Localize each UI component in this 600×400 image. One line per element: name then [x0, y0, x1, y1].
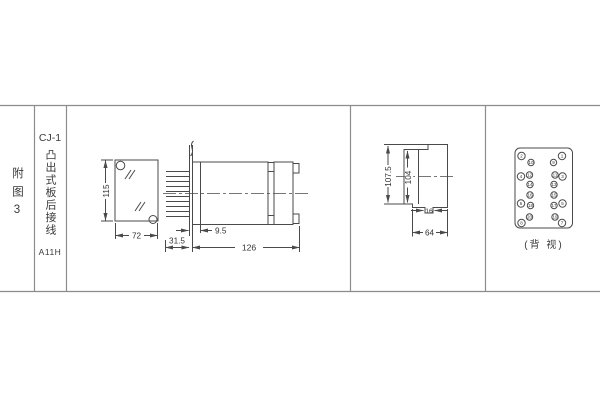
- terminal-number: 19: [552, 215, 558, 220]
- terminal: 13: [551, 181, 557, 187]
- terminal: 1: [558, 152, 565, 159]
- rear-ear: [293, 214, 299, 224]
- terminal-number: 15: [551, 193, 557, 198]
- terminal: 16: [527, 192, 533, 198]
- terminal-number: 20: [527, 215, 533, 220]
- terminal-number: 5: [561, 201, 564, 206]
- terminal: 8: [518, 219, 525, 226]
- dim-72-label: 72: [132, 232, 142, 241]
- terminal-number: 11: [553, 173, 558, 178]
- terminal-number: 18: [528, 203, 534, 208]
- terminal-number: 2: [520, 154, 523, 159]
- rear-ear: [293, 164, 299, 174]
- terminal-pins: [166, 172, 189, 217]
- terminal: 4: [517, 173, 524, 180]
- latch-tab: [268, 216, 274, 225]
- terminal-block-outline: [515, 148, 573, 228]
- terminal: 10: [528, 159, 534, 165]
- terminal-number: 9: [552, 160, 555, 165]
- dim-31p5-label: 31.5: [169, 237, 185, 246]
- terminal-number: 17: [551, 203, 557, 208]
- front-view-drawing: 115 72: [101, 160, 158, 241]
- terminal: 6: [517, 200, 524, 207]
- glass-hatch-marks: [125, 170, 145, 211]
- terminal-number: 6: [520, 201, 523, 206]
- terminal: 7: [558, 219, 565, 226]
- terminal-number: 16: [527, 193, 533, 198]
- terminal-number: 10: [528, 160, 534, 165]
- terminal: 9: [550, 159, 556, 165]
- terminal-number: 12: [527, 173, 533, 178]
- terminal: 12: [526, 172, 532, 178]
- dim-104-label: 104: [404, 170, 413, 184]
- dim-115-label: 115: [102, 184, 111, 197]
- terminal: 14: [527, 181, 533, 187]
- terminal: 5: [559, 200, 566, 207]
- terminal-number: 13: [551, 182, 557, 187]
- dim-107p5-label: 107.5: [384, 166, 393, 187]
- table-frame: [0, 106, 600, 292]
- terminal: 3: [559, 173, 566, 180]
- drawing-sheet: 附图3 CJ-1 凸出式板后接线 A11H (背 视): [0, 0, 600, 400]
- terminal-number: 1: [561, 154, 564, 159]
- terminal-number: 4: [520, 174, 523, 179]
- profile-view-drawing: 107.5 104 16 64: [384, 145, 456, 238]
- side-view-drawing: 9.5 31.5 126: [163, 141, 310, 253]
- terminal-back-view: 2 4 6 8 10 12 14 16 18 20 9 11 13 15 17 …: [515, 148, 573, 228]
- terminal-number: 14: [527, 182, 533, 187]
- latch-tab: [268, 163, 274, 172]
- dim-9p5-label: 9.5: [215, 227, 227, 236]
- terminal: 17: [551, 202, 557, 208]
- terminal: 15: [551, 192, 557, 198]
- mounting-hole: [116, 161, 125, 170]
- terminal: 18: [527, 202, 533, 208]
- panel-outline: [115, 160, 158, 221]
- terminal-number: 8: [520, 221, 523, 226]
- terminal-number: 7: [561, 221, 564, 226]
- dim-64-label: 64: [425, 229, 435, 238]
- dim-16-label: 16: [425, 208, 433, 215]
- terminal: 19: [552, 214, 558, 220]
- terminal: 11: [552, 172, 558, 178]
- terminal: 20: [526, 214, 532, 220]
- terminal: 2: [518, 152, 525, 159]
- mounting-hole: [149, 216, 157, 224]
- dim-126-label: 126: [242, 243, 257, 253]
- terminal-number: 3: [561, 174, 564, 179]
- drawing-canvas: 115 72 9.5: [0, 0, 600, 400]
